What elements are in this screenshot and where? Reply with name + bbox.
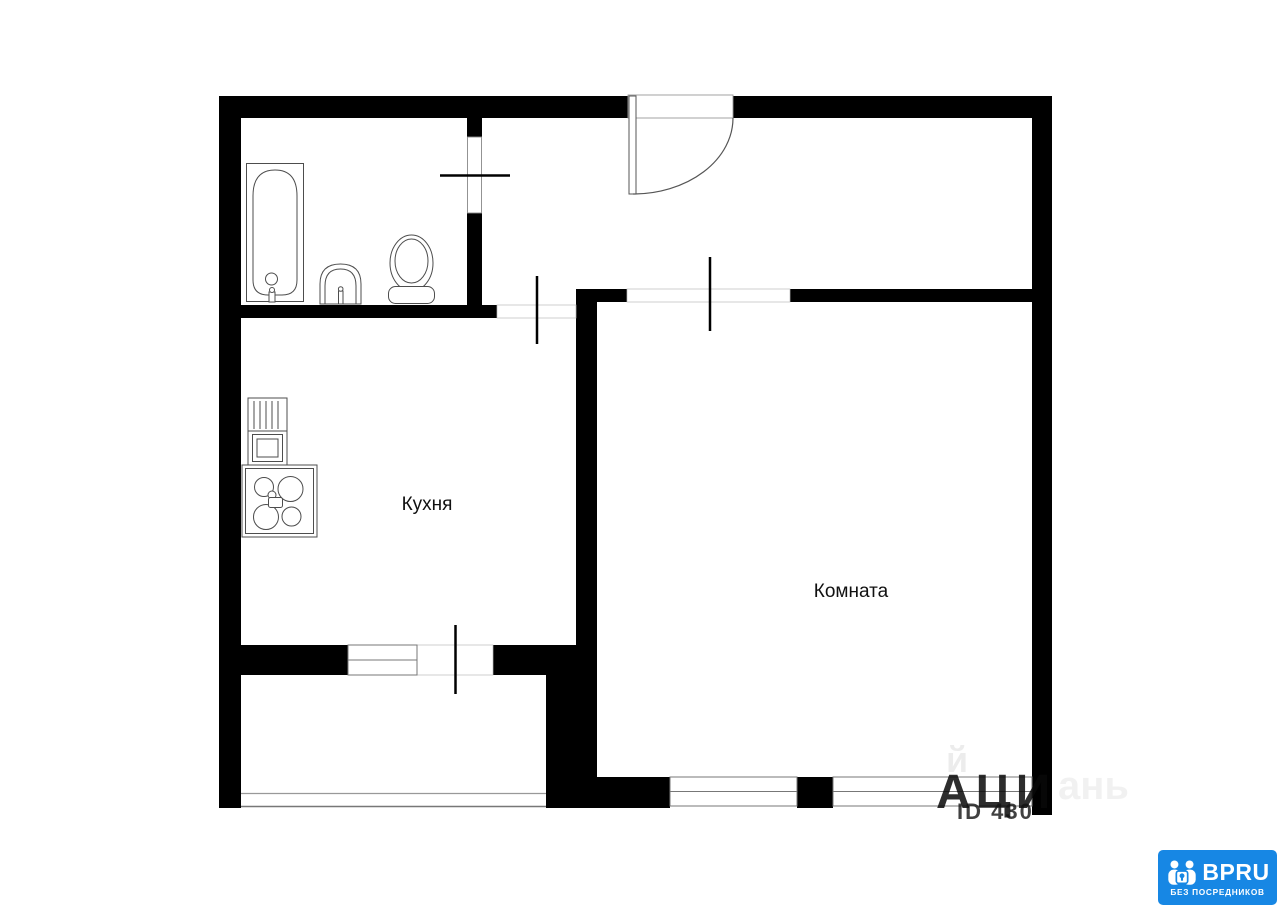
wall-room-top-right <box>790 289 1032 302</box>
room-label: Комната <box>814 581 889 602</box>
stove <box>242 465 317 537</box>
bpru-tagline: БЕЗ ПОСРЕДНИКОВ <box>1170 888 1264 896</box>
bpru-people-lock-icon <box>1165 859 1199 886</box>
wall-room-bottom-pillar <box>797 777 833 808</box>
wall-room-bottom-left <box>546 777 670 808</box>
balcony-glazing <box>241 794 546 807</box>
watermark-id-text: ID 430 <box>957 799 1034 824</box>
door-openings <box>417 95 790 675</box>
basin-tap <box>339 291 344 304</box>
entry-door-opening <box>628 95 733 118</box>
watermark-faint-right: ань <box>1058 764 1129 808</box>
bpru-brand-text: BPRU <box>1202 861 1269 884</box>
wall-bathroom-bottom <box>241 305 497 318</box>
wall-right <box>1032 96 1052 815</box>
wall-bathroom-right-lower <box>467 213 482 318</box>
wall-top-left <box>219 96 628 118</box>
wall-room-top-stub <box>597 289 627 302</box>
bpru-logo-row: BPRU <box>1165 859 1269 886</box>
bpru-logo-badge: BPRU БЕЗ ПОСРЕДНИКОВ <box>1158 850 1277 905</box>
kitchen-label: Кухня <box>402 494 453 515</box>
wall-left <box>219 96 241 808</box>
window-room-1 <box>670 777 797 806</box>
room-doorway <box>627 289 790 302</box>
walls <box>219 96 1052 815</box>
toilet <box>389 235 435 304</box>
entry-door-swing-arc <box>633 118 733 194</box>
toilet-tank <box>389 287 435 304</box>
wall-kitchen-bottom-left <box>241 645 348 675</box>
window-kitchen <box>348 645 417 675</box>
bathtub <box>247 164 304 303</box>
floorplan-image: Кухня Комната й АЦИ ID 430 ань BPRU БЕЗ … <box>0 0 1280 905</box>
wall-bathroom-right-upper <box>467 118 482 137</box>
floor-plan-svg: Кухня Комната й АЦИ ID 430 ань <box>0 0 1280 905</box>
wash-basin <box>320 264 361 304</box>
wall-kitchen-bottom-right <box>493 645 576 675</box>
entry-door-leaf <box>629 96 636 194</box>
kitchen-sink <box>248 398 287 465</box>
wall-top-right <box>733 96 1052 118</box>
bathtub-tap <box>269 292 275 302</box>
